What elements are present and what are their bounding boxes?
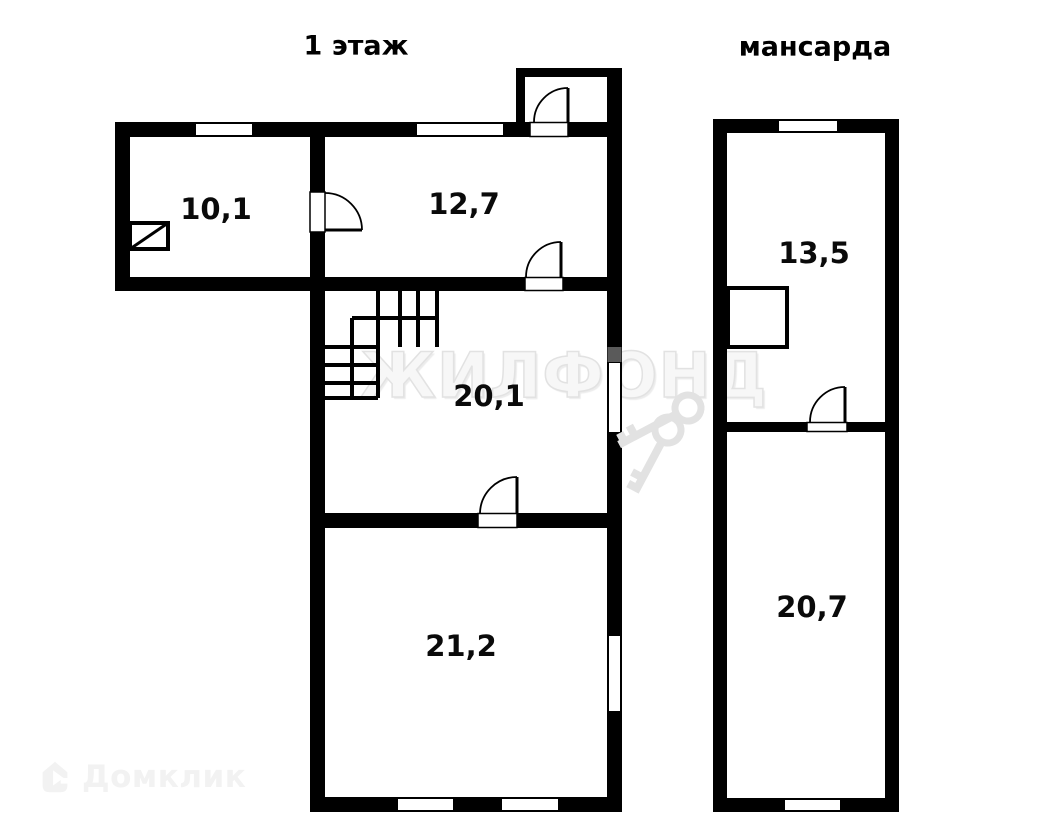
window xyxy=(608,362,621,433)
floorplan-drawing xyxy=(0,0,1051,816)
domclick-logo-text: Домклик xyxy=(82,759,246,795)
door-threshold xyxy=(525,278,563,291)
floor1-walls xyxy=(115,68,622,812)
room-area-label-12-7: 12,7 xyxy=(428,187,500,221)
door-arc xyxy=(526,242,561,277)
door-arc xyxy=(480,477,517,513)
staircase xyxy=(325,291,437,398)
wall xyxy=(727,422,885,432)
room-area-label-10-1: 10,1 xyxy=(180,192,252,226)
window xyxy=(608,635,621,712)
window xyxy=(397,798,454,811)
door-arc xyxy=(325,193,362,230)
door-threshold xyxy=(807,423,847,432)
wall xyxy=(115,122,130,291)
house-arrow-icon xyxy=(36,758,74,796)
windows xyxy=(195,120,841,811)
wall xyxy=(310,513,622,528)
window-vent-segment xyxy=(608,347,622,362)
crossed-keys-icon xyxy=(613,390,706,497)
window xyxy=(501,798,559,811)
wall xyxy=(713,119,727,812)
room-area-label-20-7: 20,7 xyxy=(776,590,848,624)
wall xyxy=(310,277,325,812)
door-arc xyxy=(810,387,845,422)
room-area-label-21-2: 21,2 xyxy=(425,629,497,663)
attic-walls xyxy=(713,119,899,812)
door-threshold xyxy=(530,123,568,137)
room-area-label-20-1: 20,1 xyxy=(453,379,525,413)
door-threshold xyxy=(310,192,325,232)
window xyxy=(416,123,504,136)
door-threshold xyxy=(478,514,517,528)
window xyxy=(784,799,841,811)
attic-chimney-box xyxy=(728,288,787,347)
porch-wall xyxy=(516,68,525,122)
domclick-logo: Домклик xyxy=(36,758,246,796)
floorplan-canvas: ЖИЛФОНД 1 этаж мансарда xyxy=(0,0,1051,816)
door-arc xyxy=(534,88,568,122)
room-area-label-13-5: 13,5 xyxy=(778,236,850,270)
window xyxy=(778,120,838,132)
wall xyxy=(885,119,899,812)
wall xyxy=(310,797,622,812)
porch-wall xyxy=(516,68,622,77)
window xyxy=(195,123,253,136)
